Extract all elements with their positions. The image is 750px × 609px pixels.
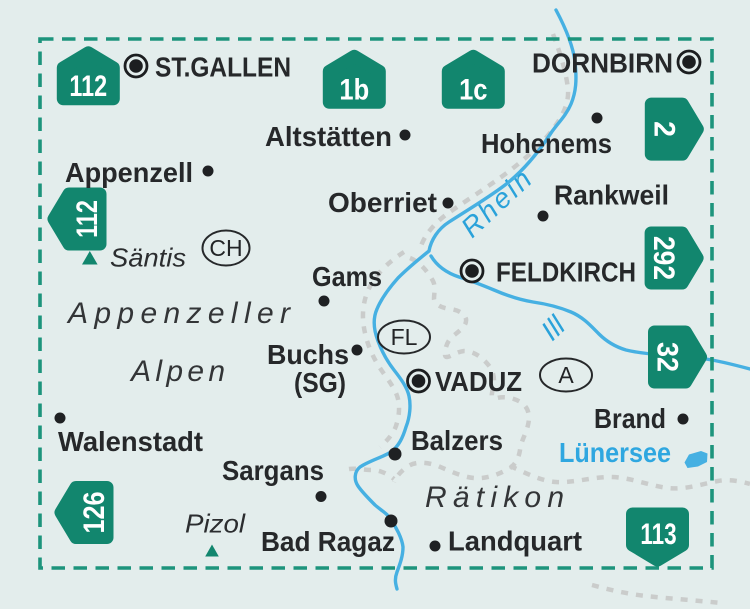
- svg-text:(SG): (SG): [294, 367, 346, 398]
- svg-text:1b: 1b: [339, 72, 369, 105]
- svg-text:112: 112: [69, 69, 107, 102]
- svg-text:Balzers: Balzers: [411, 425, 503, 456]
- svg-text:ST.GALLEN: ST.GALLEN: [155, 52, 291, 83]
- svg-text:Brand: Brand: [594, 403, 666, 434]
- svg-text:Hohenems: Hohenems: [481, 128, 612, 159]
- svg-text:Pizol: Pizol: [185, 509, 246, 539]
- svg-text:32: 32: [650, 342, 684, 372]
- svg-text:FELDKIRCH: FELDKIRCH: [496, 257, 636, 288]
- svg-text:Appenzeller: Appenzeller: [66, 297, 297, 330]
- svg-text:292: 292: [648, 236, 682, 280]
- svg-text:Walenstadt: Walenstadt: [58, 426, 203, 457]
- svg-text:Buchs: Buchs: [267, 339, 349, 370]
- svg-text:FL: FL: [391, 324, 418, 350]
- svg-text:A: A: [558, 362, 574, 388]
- svg-text:2: 2: [647, 121, 680, 137]
- svg-text:Alpen: Alpen: [129, 355, 232, 388]
- svg-text:VADUZ: VADUZ: [435, 366, 522, 397]
- svg-text:Altstätten: Altstätten: [265, 121, 392, 152]
- svg-text:Oberriet: Oberriet: [328, 187, 437, 218]
- svg-text:Bad Ragaz: Bad Ragaz: [261, 526, 395, 557]
- svg-text:Säntis: Säntis: [110, 243, 186, 273]
- svg-text:1c: 1c: [459, 72, 487, 105]
- svg-text:Rankweil: Rankweil: [554, 180, 669, 211]
- svg-text:Appenzell: Appenzell: [65, 157, 193, 188]
- svg-text:Gams: Gams: [312, 261, 382, 292]
- svg-text:Lünersee: Lünersee: [559, 437, 671, 468]
- svg-text:113: 113: [640, 517, 676, 551]
- svg-text:Sargans: Sargans: [222, 455, 324, 486]
- svg-text:DORNBIRN: DORNBIRN: [532, 48, 673, 79]
- svg-text:Rätikon: Rätikon: [425, 481, 571, 514]
- svg-text:Landquart: Landquart: [448, 526, 582, 557]
- svg-text:112: 112: [70, 200, 103, 238]
- svg-text:CH: CH: [209, 235, 242, 261]
- svg-text:126: 126: [77, 491, 111, 533]
